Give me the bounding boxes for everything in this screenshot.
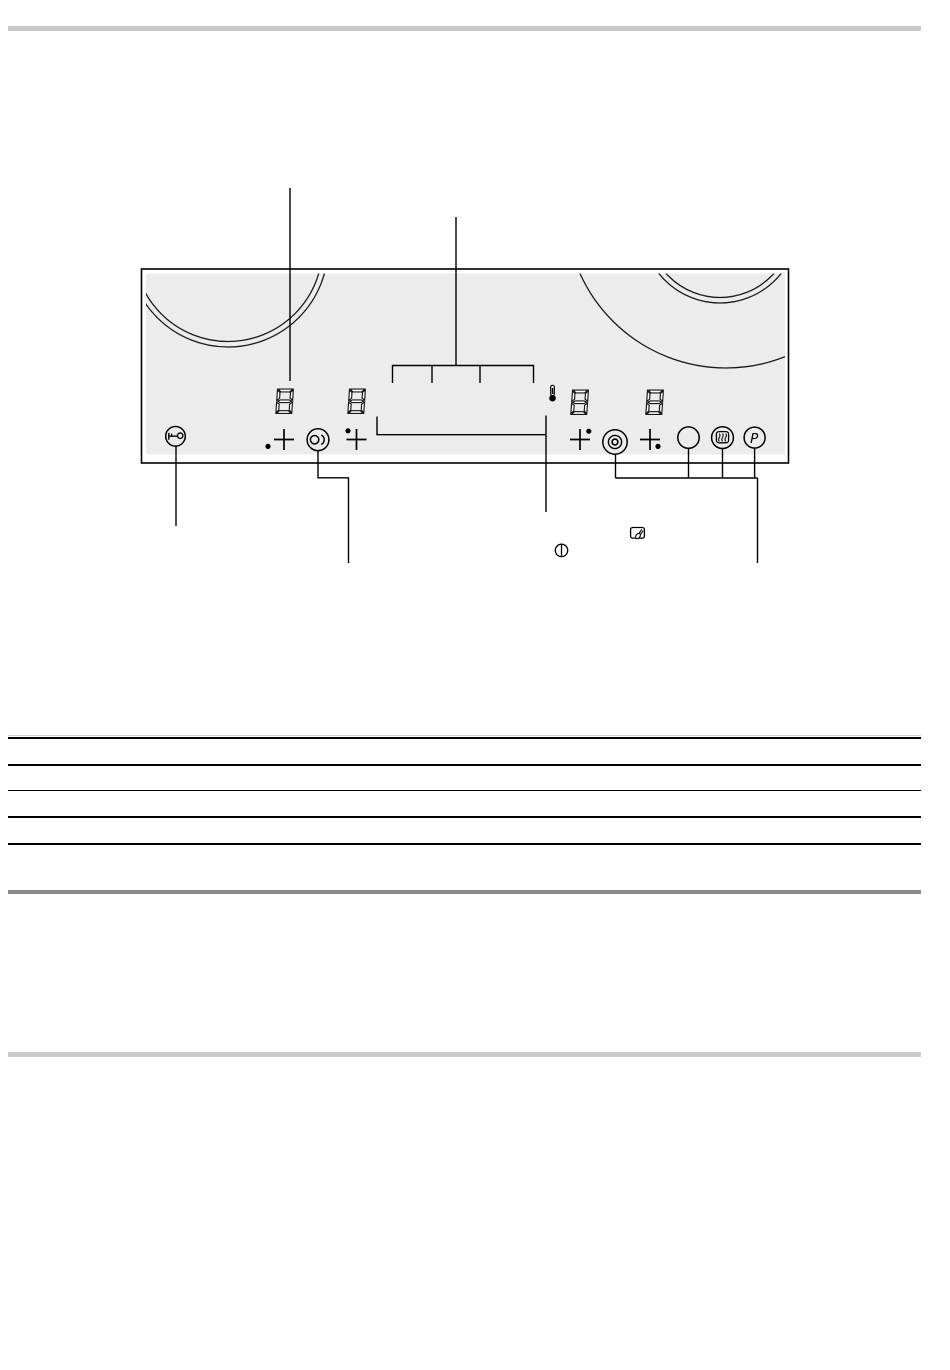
table-rule-1 (8, 737, 921, 739)
selector-dot (655, 444, 660, 449)
selector-dot (586, 429, 591, 434)
table-rule-2 (8, 764, 921, 766)
standby-power-icon (555, 544, 567, 556)
control-panel-figure: P (0, 0, 950, 700)
table-rule-3 (8, 790, 921, 792)
callout-dualzone-line (318, 451, 349, 563)
thermometer-icon (549, 385, 556, 401)
callout-right-group-line (616, 448, 758, 563)
table-rule-shadow (8, 735, 921, 736)
sensor-touch-icon (631, 528, 645, 540)
selector-dot (345, 428, 350, 433)
power-boost-label: P (750, 431, 759, 447)
table-footer-rule (8, 890, 921, 894)
table-rule-4 (8, 816, 921, 818)
footer-rule (8, 1052, 921, 1057)
table-rule-5 (8, 843, 921, 845)
selector-dot (265, 444, 270, 449)
